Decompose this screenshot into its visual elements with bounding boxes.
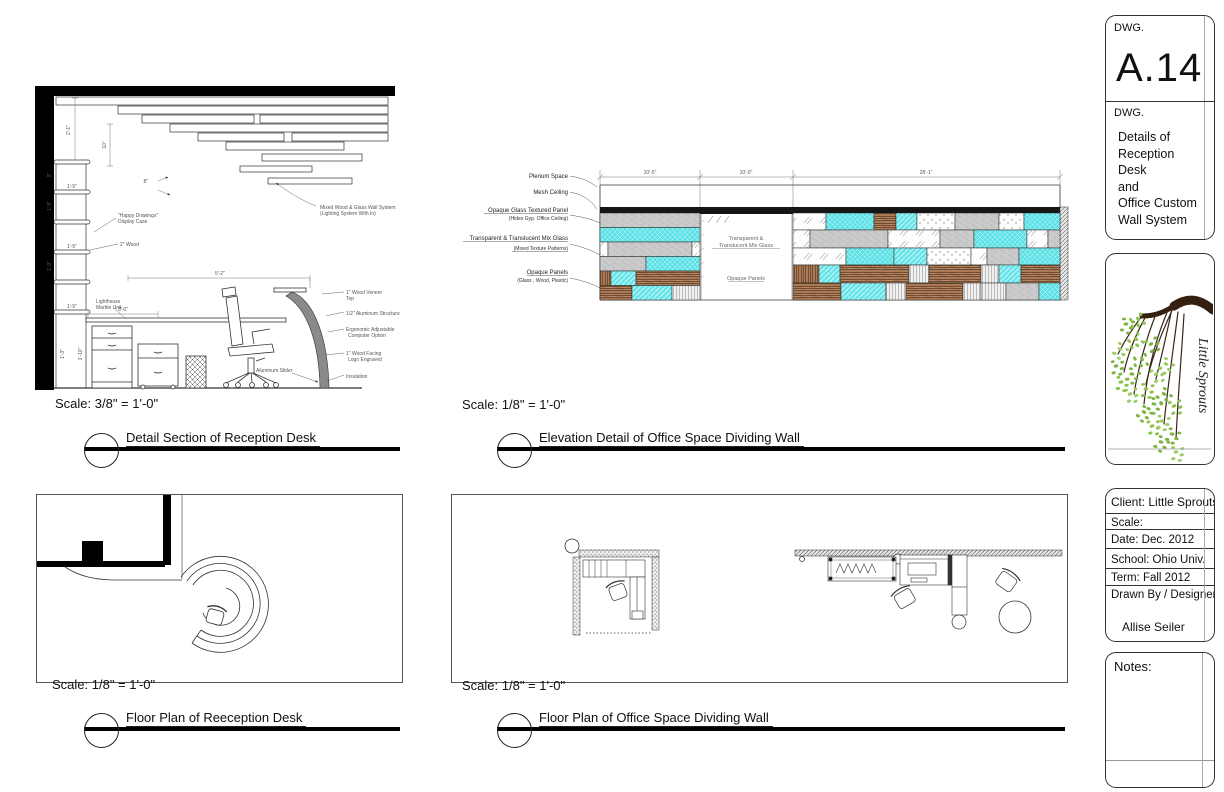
drawing-bubble-icon (497, 433, 532, 468)
label-display-case-2: Display Case (118, 219, 148, 225)
label-opaque-panels-2: (Glass , Wood, Plastic) (517, 278, 568, 284)
label-facing-2: Logo Engraved (348, 357, 382, 363)
label-insulation: Insulation (346, 374, 368, 380)
label-opaque-glass-2: (Hides Gyp. Office Ceiling) (509, 216, 568, 222)
label-plenum: Plenum Space (529, 174, 569, 180)
dim-mid-bay: 10'-0" (740, 170, 753, 176)
chair-plan (890, 584, 918, 611)
file-cabinet (92, 326, 132, 388)
info-term: Term: Fall 2012 (1106, 569, 1214, 586)
label-aluminum: 1/2" Aluminum Structure (346, 311, 400, 317)
dim-shelf-9: 9" (47, 173, 53, 178)
chair-plan (605, 579, 630, 602)
info-date: Date: Dec. 2012 (1106, 530, 1214, 549)
drawing-title-floor-plan-wall: Floor Plan of Office Space Dividing Wall (497, 712, 1065, 750)
drawing-bubble-icon (84, 713, 119, 748)
dim-case-h: 1'-3" (60, 349, 66, 359)
sheet-number: A.14 (1116, 46, 1202, 91)
drawing-title-text: Detail Section of Reception Desk (126, 430, 320, 447)
mobile-cabinet (138, 344, 178, 389)
label-marble-2: Marble Unit (96, 305, 122, 311)
info-school: School: Ohio Univ. (1106, 549, 1214, 569)
round-table-plan (999, 601, 1031, 633)
dim-slat: 8" (143, 179, 148, 185)
dwg-number-box: DWG. A.14 DWG. Details of Reception Desk… (1105, 15, 1215, 240)
dim-case-d: 1'-10" (78, 347, 84, 360)
credenza-plan (828, 557, 896, 581)
chair-plan (993, 566, 1022, 594)
dim-wall-height: 2'-1" (66, 125, 72, 135)
label-mesh-ceiling: Mesh Ceiling (533, 190, 568, 196)
dim-right-bay: 28'-1" (920, 170, 933, 176)
scale-note-detail-section: Scale: 3/8" = 1'-0" (55, 396, 158, 411)
label-ergonomic-2: Computer Option (348, 333, 386, 339)
desk-unit-plan (900, 555, 967, 615)
curved-front-panel (286, 292, 329, 388)
plan-walls (37, 495, 182, 579)
dwg-label: DWG. (1114, 22, 1144, 34)
office-corner-plan (565, 539, 659, 635)
drawing-title-text: Floor Plan of Reeception Desk (126, 710, 306, 727)
title-rule (497, 727, 1065, 731)
drawing-title-text: Floor Plan of Office Space Dividing Wall (539, 710, 773, 727)
notes-rule (1106, 760, 1214, 761)
drawing-title-elevation: Elevation Detail of Office Space Dividin… (497, 432, 1065, 470)
plan-border (37, 495, 403, 683)
drawing-title-floor-plan-reception: Floor Plan of Reeception Desk (84, 712, 400, 750)
floor-plan-reception-drawing (35, 493, 405, 685)
title-rule (84, 447, 400, 451)
dim-shelf-5: 1'-5" (67, 304, 77, 310)
notes-label: Notes: (1114, 659, 1152, 674)
label-veneer-2: Top (346, 296, 354, 302)
desk-chair-plan (204, 604, 228, 627)
plan-border (452, 495, 1068, 683)
elevation-dimensions (597, 170, 1063, 207)
scale-note-floor-plan-wall: Scale: 1/8" = 1'-0" (462, 678, 565, 693)
logo-box: Little Sprouts (1105, 253, 1215, 465)
scale-note-elevation: Scale: 1/8" = 1'-0" (462, 397, 565, 412)
panel-mosaic-left (600, 213, 700, 300)
elevation-drawing: Plenum Space Mesh Ceiling Opaque Glass T… (450, 82, 1075, 402)
label-mix-glass: Transparent & Translucent Mix Glass (470, 236, 568, 242)
dim-desk: 5'-2" (215, 271, 225, 277)
drawing-bubble-icon (84, 433, 119, 468)
titleblock-divider (1106, 101, 1214, 102)
stool-plan (952, 615, 966, 629)
reception-desk-plan (65, 556, 268, 652)
middle-opening: Transparent & Translucent Mix Glass Opaq… (698, 214, 792, 300)
slat-wall-system (56, 97, 388, 184)
label-opaque-panels: Opaque Panels (527, 270, 568, 276)
column-circle (565, 539, 579, 553)
label-opaque-glass: Opaque Glass Textured Panel (488, 208, 568, 214)
detail-section-drawing: 2'-1" 10" 8" 9" 1'-5" 1'-9" 1'-5" 1'-9" … (30, 82, 430, 417)
mid-label-transparent: Transparent & (729, 236, 764, 242)
dim-shelf-4: 1'-9" (47, 261, 53, 271)
logo-wordmark: Little Sprouts (1195, 337, 1210, 414)
dim-shelf-1: 1'-5" (67, 184, 77, 190)
info-designer-name: Allise Seiler (1106, 616, 1214, 636)
dim-left-bay: 10'-5" (644, 170, 657, 176)
dim-shelf-2: 1'-9" (47, 201, 53, 211)
drawing-bubble-icon (497, 713, 532, 748)
label-mix-glass-2: (Mixed Texture Patterns) (514, 246, 569, 252)
drawing-title-detail-section: Detail Section of Reception Desk (84, 432, 400, 470)
panel-mosaic-right (793, 213, 1060, 300)
info-drawn-by: Drawn By / Designer: (1106, 586, 1214, 602)
mid-label-translucent: Translucent Mix Glass (719, 243, 773, 249)
wall-end-post (1060, 207, 1068, 300)
trash-bin (186, 356, 206, 388)
notes-box: Notes: (1105, 652, 1215, 788)
mid-label-opaque: Opaque Panels (727, 276, 765, 282)
sheet-title: Details of Reception Desk and Office Cus… (1118, 129, 1200, 228)
info-scale: Scale: (1106, 514, 1214, 530)
dim-slat-gap: 10" (102, 141, 108, 149)
titleblock-rule (1202, 653, 1203, 787)
titleblock-rule (1204, 16, 1205, 239)
info-client: Client: Little Sprouts (1106, 489, 1214, 514)
label-slider: Aluminum Slider (256, 368, 293, 374)
little-sprouts-logo: Little Sprouts (1106, 254, 1213, 463)
floor-plan-wall-drawing (450, 493, 1070, 685)
column (82, 541, 103, 561)
titleblock-rule (1204, 489, 1205, 641)
project-info-box: Client: Little Sprouts Scale: Date: Dec.… (1105, 488, 1215, 642)
label-wall-system-2: (Lighting System With In) (320, 211, 376, 217)
title-rule (497, 447, 1065, 451)
dwg-label-2: DWG. (1114, 107, 1144, 119)
label-wood: 2" Wood (120, 242, 139, 248)
scale-note-floor-plan-reception: Scale: 1/8" = 1'-0" (52, 677, 155, 692)
drawing-sheet: 2'-1" 10" 8" 9" 1'-5" 1'-9" 1'-5" 1'-9" … (0, 0, 1224, 792)
elevation-callouts: Plenum Space Mesh Ceiling Opaque Glass T… (463, 174, 600, 288)
title-rule (84, 727, 400, 731)
drawing-title-text: Elevation Detail of Office Space Dividin… (539, 430, 804, 447)
open-office-plan (795, 550, 1062, 633)
dim-shelf-3: 1'-5" (67, 244, 77, 250)
